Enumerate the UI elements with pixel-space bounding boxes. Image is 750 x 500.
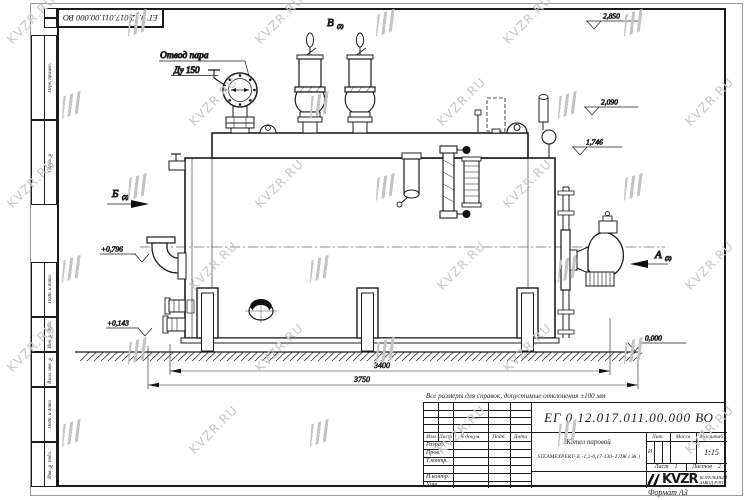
col-list: Лист bbox=[438, 432, 453, 441]
svg-text:В: В bbox=[327, 17, 334, 29]
product-model: STEAMEXPERT- Е -1,2-0,17-130- ГЛЖ ( Ж ) bbox=[531, 451, 646, 463]
steam-dome bbox=[212, 133, 528, 158]
level-1746: 1,746 bbox=[572, 138, 622, 156]
svg-text:Б: Б bbox=[111, 188, 119, 200]
svg-text:0,000: 0,000 bbox=[645, 334, 662, 343]
lit-value: И bbox=[646, 441, 654, 463]
col-izm: Изм bbox=[424, 432, 438, 441]
scale-label: Масштаб bbox=[696, 433, 727, 441]
svg-text:3750: 3750 bbox=[353, 375, 370, 384]
title-block: Изм Лист N докум. Подп. Дата Разраб. Про… bbox=[423, 402, 726, 487]
steam-outlet-label: Отвод пара Ду 150 bbox=[159, 50, 249, 76]
product-name-cell: Котел паровой STEAMEXPERT- Е -1,2-0,17-1… bbox=[531, 433, 646, 471]
general-note: Все размеры для справок, допустимые откл… bbox=[426, 392, 726, 400]
product-name: Котел паровой bbox=[531, 433, 646, 451]
col-ndoc: N докум. bbox=[453, 432, 488, 441]
pressure-gauge bbox=[539, 95, 556, 159]
row-tkontr: Т.контр. bbox=[426, 458, 456, 466]
lit-label: Лит. bbox=[646, 433, 670, 441]
svg-text:(2): (2) bbox=[337, 23, 344, 30]
boiler-body bbox=[140, 133, 665, 343]
view-label-a: А (2) bbox=[630, 249, 672, 268]
nozzle-stub-1 bbox=[165, 298, 185, 314]
format-label: Формат А3 bbox=[648, 488, 688, 497]
svg-text:1,746: 1,746 bbox=[586, 138, 603, 147]
svg-text:2,090: 2,090 bbox=[601, 98, 618, 107]
nozzle-stub-2 bbox=[163, 316, 185, 333]
safety-valve-1 bbox=[295, 33, 325, 133]
siphon-loop bbox=[542, 130, 556, 144]
svg-text:Ду 150: Ду 150 bbox=[173, 65, 200, 75]
burner-junction-box bbox=[599, 221, 617, 233]
col-podp: Подп. bbox=[488, 432, 510, 441]
svg-text:+0,796: +0,796 bbox=[101, 245, 123, 254]
row-utv: Утв. bbox=[426, 482, 456, 490]
level-2850: 2,850 bbox=[586, 12, 641, 30]
company-logo-cell: KVZR КОТЕЛЬНЫЙЗАВОД РЭП bbox=[646, 471, 727, 488]
safety-valve-2 bbox=[345, 33, 375, 133]
level-0000: 0,000 bbox=[628, 334, 686, 352]
elbow-pipe bbox=[147, 237, 186, 279]
scale-value: 1:15 bbox=[696, 441, 727, 463]
kvzr-logo-text: KVZR bbox=[662, 472, 698, 487]
fan-scroll bbox=[588, 232, 623, 277]
mass-label: Масса bbox=[670, 433, 696, 441]
title-doc-number: ЕГ 0.12.017.011.00.000 ВО bbox=[531, 403, 727, 432]
kvzr-logo-icon bbox=[646, 474, 660, 486]
svg-text:А: А bbox=[654, 249, 662, 261]
burner-fan-unit bbox=[561, 212, 623, 291]
phantom-box bbox=[487, 98, 505, 131]
col-data: Дата bbox=[510, 432, 531, 441]
ground-line bbox=[75, 352, 642, 361]
level-0143: +0,143 bbox=[106, 319, 152, 337]
steam-outlet-valve bbox=[208, 70, 257, 133]
sheets-cell: Листов2 bbox=[686, 463, 727, 471]
row-razrab: Разраб. bbox=[426, 442, 456, 450]
sheet-cell: Лист1 bbox=[646, 463, 686, 471]
svg-text:+0,143: +0,143 bbox=[107, 319, 129, 328]
svg-text:(2): (2) bbox=[665, 255, 672, 262]
svg-text:Отвод пара: Отвод пара bbox=[160, 50, 209, 61]
svg-text:3400: 3400 bbox=[373, 361, 390, 370]
svg-text:(2): (2) bbox=[122, 194, 129, 201]
level-2090: 2,090 bbox=[584, 98, 638, 116]
kvzr-logo-subtext: КОТЕЛЬНЫЙЗАВОД РЭП bbox=[700, 475, 727, 485]
svg-text:2,850: 2,850 bbox=[603, 12, 620, 21]
drawing-sheet: { "doc_number": "ЕГ 0.12.017.011.00.000 … bbox=[0, 0, 750, 500]
row-nkontr: Н.контр. bbox=[426, 474, 456, 482]
dome-lug-left bbox=[260, 125, 276, 133]
view-label-v: В (2) bbox=[327, 17, 344, 30]
small-valve bbox=[169, 161, 185, 170]
view-label-b: Б (2) bbox=[107, 188, 149, 208]
row-prov: Пров. bbox=[426, 450, 456, 458]
